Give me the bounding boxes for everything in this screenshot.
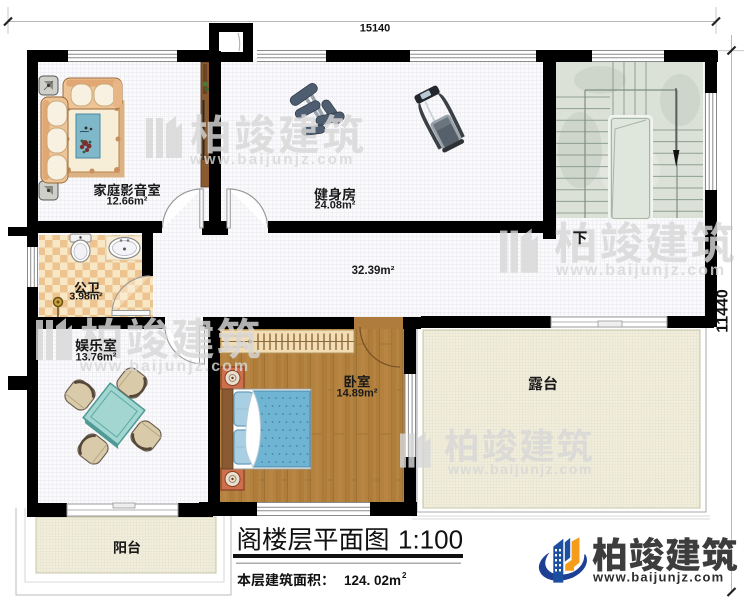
svg-text:3.98m²: 3.98m² — [69, 291, 103, 303]
svg-text:32.39m²: 32.39m² — [352, 265, 395, 277]
svg-text:13.76m²: 13.76m² — [76, 352, 117, 364]
svg-text:www.baijunjz.com: www.baijunjz.com — [592, 570, 724, 585]
svg-text:12.66m²: 12.66m² — [107, 196, 148, 208]
svg-text:1:100: 1:100 — [398, 525, 463, 555]
svg-text:14.89m²: 14.89m² — [337, 388, 378, 400]
svg-text:124. 02m: 124. 02m — [344, 573, 401, 588]
svg-text:15140: 15140 — [360, 23, 391, 35]
svg-text:2: 2 — [402, 571, 407, 580]
svg-text:24.08m²: 24.08m² — [315, 200, 356, 212]
svg-text:www.baijunjz.com: www.baijunjz.com — [189, 151, 355, 168]
svg-text:11440: 11440 — [715, 289, 732, 333]
svg-text:www.baijunjz.com: www.baijunjz.com — [447, 461, 593, 477]
svg-text:www.baijunjz.com: www.baijunjz.com — [555, 262, 726, 279]
